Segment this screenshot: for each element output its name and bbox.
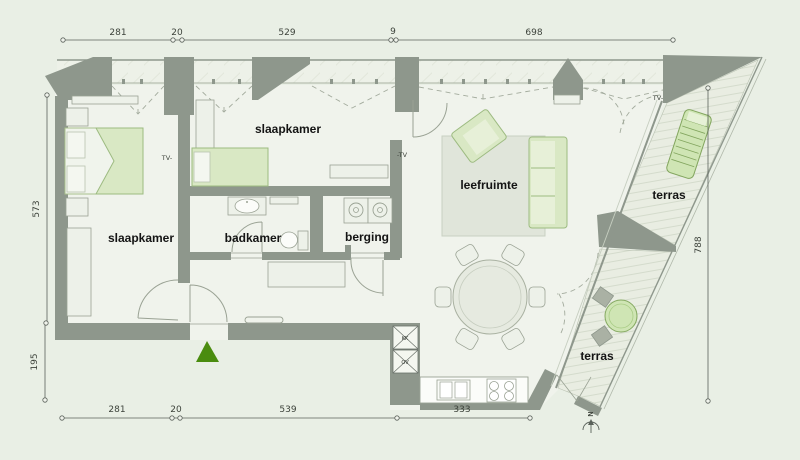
room-label-terrace-lower: terras [580,349,614,363]
dim-top-4: 9 [390,27,396,37]
desk [330,165,388,178]
tv-outlet-living: -TV [397,151,408,159]
nightstand [66,108,88,126]
dining-chair [435,287,451,307]
dim-right-1: 788 [694,236,704,253]
wall-bottom-a [57,323,190,340]
room-label-terrace-upper: terras [652,188,686,202]
room-label-bedroom-mid: slaapkamer [255,122,321,136]
north-letter: N [586,411,593,416]
room-label-living: leefruimte [460,178,518,192]
wall-bedrooms-divider [178,115,190,283]
dim-bottom-3: 539 [279,405,296,415]
dim-top-3: 529 [278,28,295,38]
dim-bottom-1: 281 [108,405,125,415]
oven-label: OV [401,360,409,366]
door-gap-hall [351,251,384,261]
tv-outlet-bedroom: TV- [161,154,173,162]
dim-left-2: 195 [30,353,40,370]
tv-cabinet [554,95,580,104]
storage-appliances [344,198,392,223]
dining-table [453,260,527,334]
nightstand [66,198,88,216]
room-label-bathroom: badkamer [225,231,282,245]
washing-machine [344,198,368,223]
room-label-storage: berging [345,230,389,244]
cooktop [487,379,516,402]
dryer [368,198,392,223]
room-label-bedroom-left: slaapkamer [108,231,174,245]
floor-plan: KK OV [0,0,800,460]
wall-bath-top [190,186,400,196]
vanity-sink [228,197,266,215]
wall-under-counter [420,403,540,410]
sofa [529,137,567,228]
door-gap-bath [231,251,262,261]
dim-left-1: 573 [32,200,42,217]
wall-bath-storage [310,196,323,252]
pier-4 [395,57,419,112]
dining-chair [529,287,545,307]
pier-2 [164,57,194,115]
double-bed [65,128,143,194]
tv-outlet-terrace: TV- [652,94,664,102]
fridge-box: KK [393,326,418,349]
towel-radiator [270,197,298,204]
hall-wardrobe [268,262,345,287]
dim-bottom-2: 20 [170,405,182,415]
wall-bottom-b [228,323,390,340]
dim-top-1: 281 [109,28,126,38]
terrace-table [605,300,637,332]
dim-top-5: 698 [525,28,542,38]
wardrobe [67,228,91,316]
oven-box: OV [393,350,418,373]
dim-top-2: 20 [171,28,183,38]
single-bed [192,148,268,186]
dim-bottom-4: 333 [453,405,470,415]
radiator [72,96,138,104]
fridge-label: KK [402,336,409,342]
